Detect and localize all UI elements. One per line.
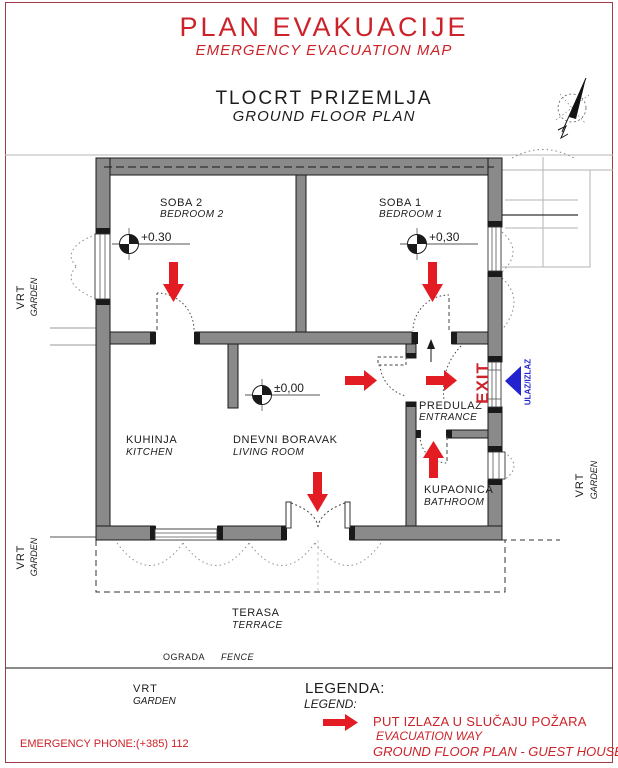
label-living-en: LIVING ROOM [233,447,304,458]
label-terrace-hr: TERASA [232,607,280,619]
garden-right-en: GARDEN [589,461,599,500]
garden-bottom-hr: VRT [133,683,158,695]
legend-title-en: LEGEND: [304,697,357,711]
label-bedroom1-en: BEDROOM 1 [379,209,443,220]
label-bathroom-en: BATHROOM [424,497,484,508]
terrace-outline [96,540,560,592]
garden-left-upper-hr: VRT [15,285,27,310]
entry-exit-blue-arrow [505,366,521,396]
label-kitchen-hr: KUHINJA [126,434,177,446]
label-bedroom1-hr: SOBA 1 [379,197,422,209]
label-entrance-en: ENTRANCE [419,412,477,423]
exterior-lines-left [50,234,96,537]
evacuation-arrow-living-right [345,370,377,391]
emergency-phone: EMERGENCY PHONE:(+385) 112 [20,738,189,750]
fence-label-hr: OGRADA [163,652,205,662]
garden-bottom-en: GARDEN [133,696,176,707]
legend-title-hr: LEGENDA: [305,680,385,697]
label-terrace-en: TERRACE [232,620,283,631]
legend-footer: GROUND FLOOR PLAN - GUEST HOUSE [373,744,618,759]
exterior-stairs [502,150,613,481]
garden-right-hr: VRT [574,473,586,498]
compass-north-icon [556,78,589,138]
level-value-bedroom1: +0,30 [429,230,459,244]
garden-left-lower-hr: VRT [15,545,27,570]
evacuation-arrow-bedroom2-down [163,262,184,302]
legend-item-en: EVACUATION WAY [376,729,482,743]
label-kitchen-en: KITCHEN [126,447,173,458]
evacuation-arrow-living-down [307,472,328,512]
garden-left-lower-en: GARDEN [29,538,39,577]
legend-evacuation-arrow [323,714,358,731]
evacuation-plan-page: PLAN EVAKUACIJE EMERGENCY EVACUATION MAP… [0,0,618,768]
step-up-arrow [427,339,435,362]
evacuation-arrow-entrance-right [426,370,457,391]
level-value-bedroom2: +0.30 [141,230,171,244]
legend-item-hr: PUT IZLAZA U SLUČAJU POŽARA [373,714,587,729]
exit-sign: EXIT [473,362,493,404]
entry-exit-sign: ULAZ/IZLAZ [524,359,533,405]
label-bedroom2-hr: SOBA 2 [160,197,203,209]
fence-label-en: FENCE [221,652,254,662]
label-bathroom-hr: KUPAONICA [424,484,493,496]
garden-left-upper-en: GARDEN [29,278,39,317]
label-living-hr: DNEVNI BORAVAK [233,434,338,446]
level-value-living: ±0,00 [274,381,304,395]
evacuation-arrow-bathroom-up [423,441,444,478]
label-bedroom2-en: BEDROOM 2 [160,209,224,220]
